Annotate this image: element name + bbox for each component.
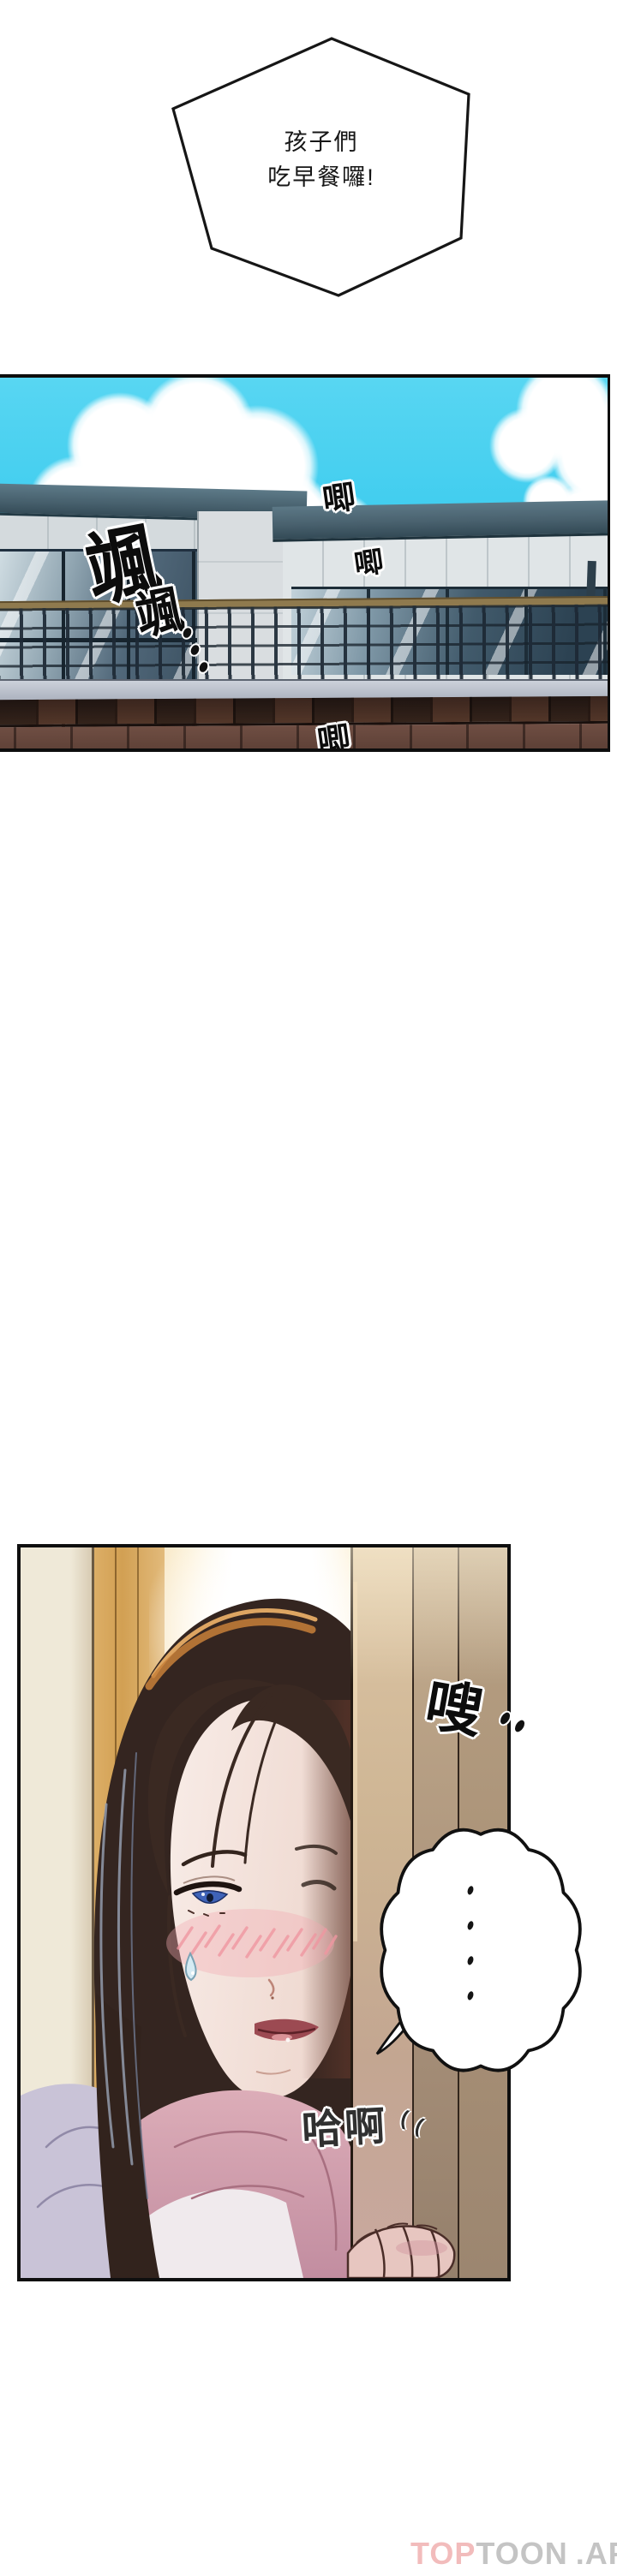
dialogue-bubble: 孩子們 吃早餐囉! — [159, 26, 482, 303]
comic-page: 孩子們 吃早餐囉! 颯 颯 — [0, 0, 617, 2576]
watermark-toon: TOON — [476, 2536, 567, 2571]
sfx-chirp-middle: 唧 — [351, 538, 386, 583]
brick-wall — [0, 696, 610, 752]
sfx-chirp-bottom: 唧 — [314, 712, 352, 752]
dialogue-line-2: 吃早餐囉! — [227, 160, 416, 195]
toptoon-watermark: TOPTOON.APP — [410, 2536, 617, 2572]
brick-row-upper — [0, 696, 610, 724]
balcony-railing — [0, 604, 610, 683]
sfx-breath: 哈啊 — [300, 2092, 388, 2156]
panel-school-exterior: 颯 颯 唧 唧 唧 — [0, 374, 610, 752]
watermark-app: .APP — [576, 2536, 617, 2571]
watermark-top: TOP — [410, 2536, 476, 2571]
dialogue-line-1: 孩子們 — [227, 125, 416, 160]
thought-bubble: • • • • — [375, 1828, 586, 2078]
dialogue-text: 孩子們 吃早餐囉! — [227, 125, 416, 194]
brick-row-lower — [0, 724, 610, 752]
sfx-whoosh-dot — [513, 1719, 527, 1733]
sfx-chirp-top: 唧 — [319, 470, 357, 522]
